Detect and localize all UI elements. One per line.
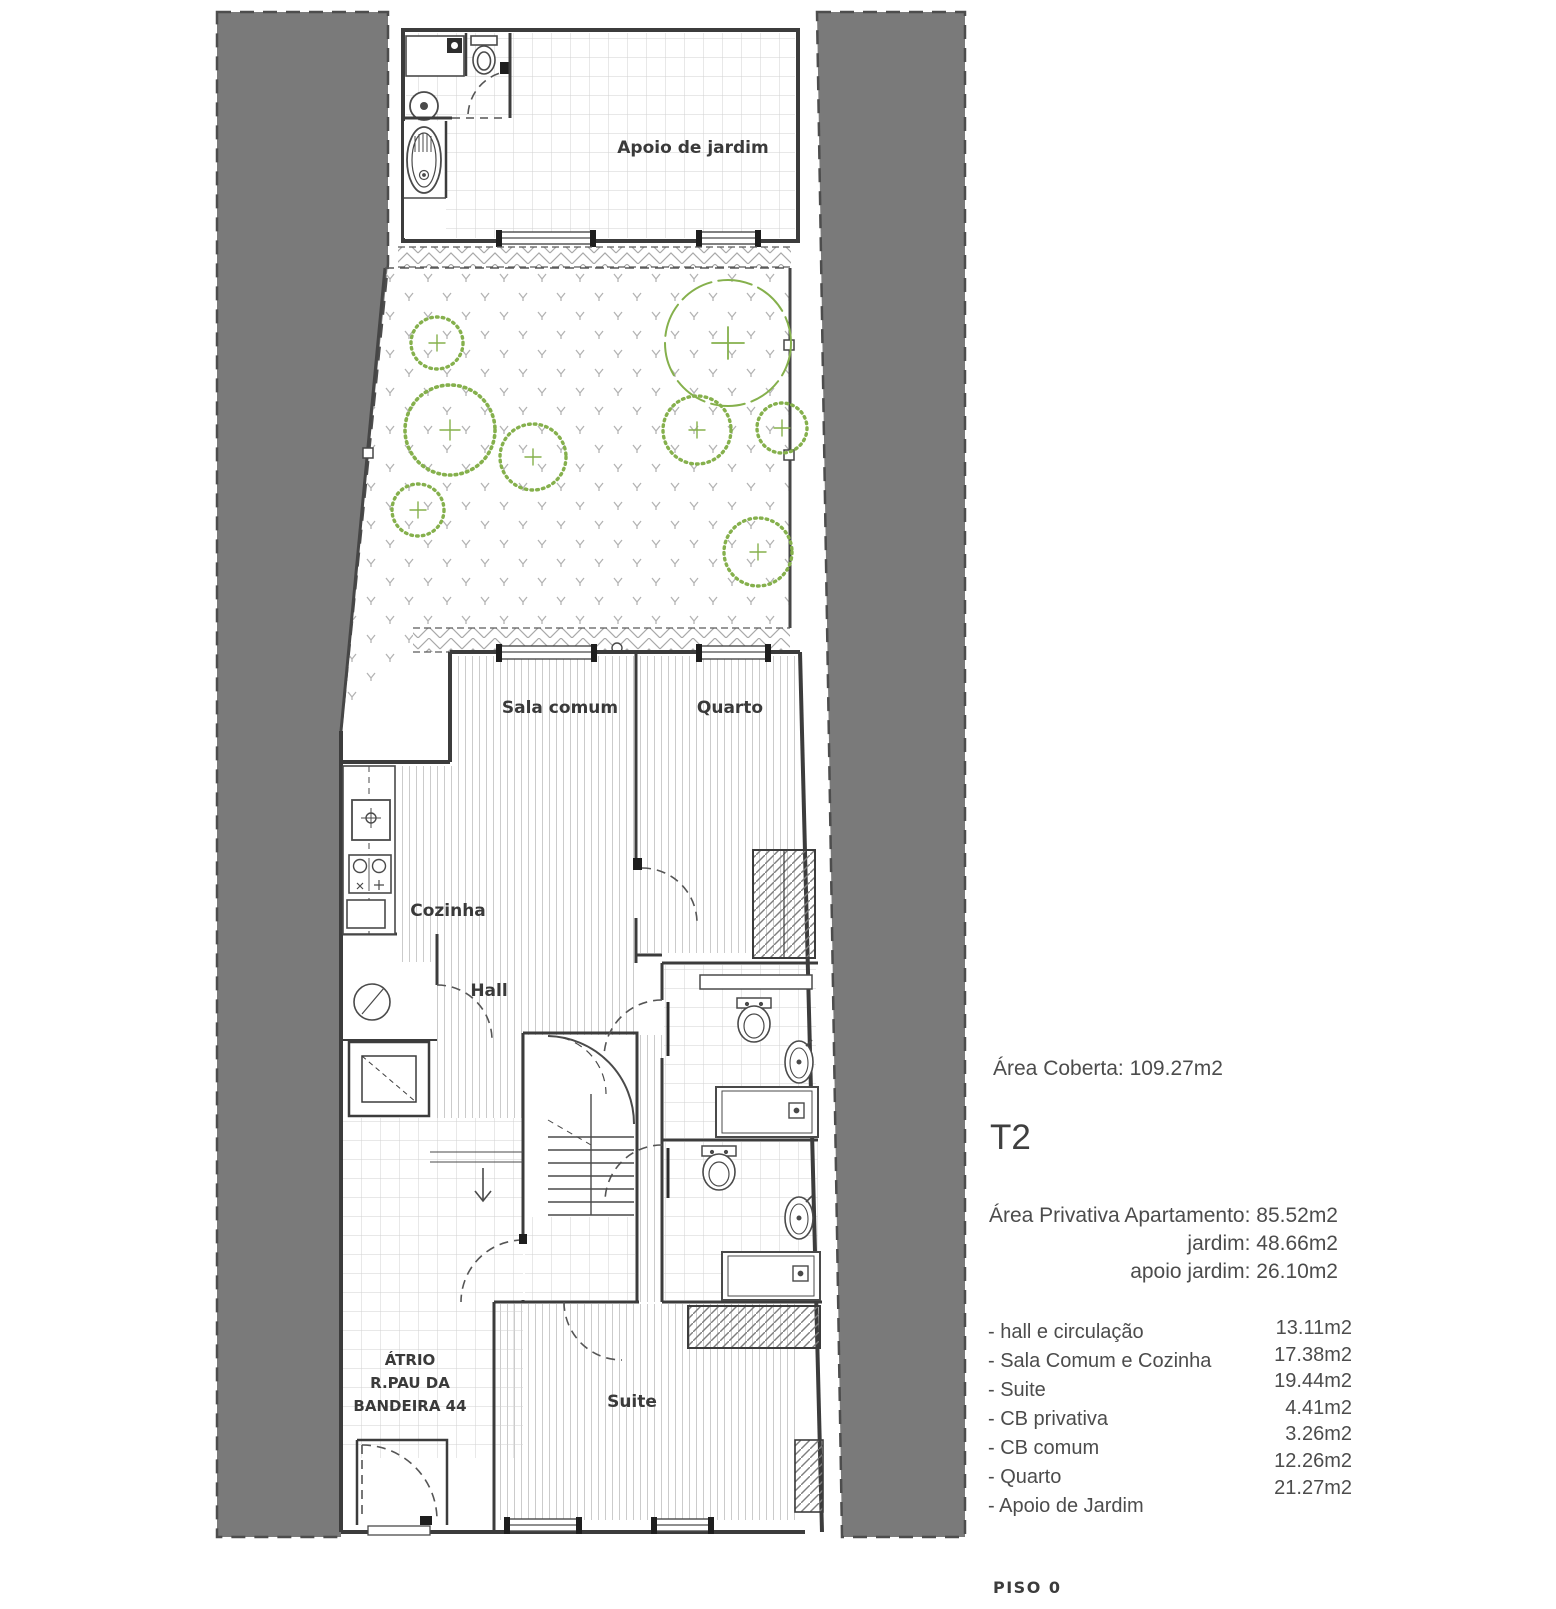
floor-plan-sheet: Apoio de jardim <box>0 0 1556 1609</box>
room-label-sala-comum: Sala comum <box>502 698 618 718</box>
room-label-atrio: BANDEIRA 44 <box>353 1397 466 1415</box>
wall-marker <box>784 340 794 350</box>
window <box>696 230 761 247</box>
room-label-cozinha: Cozinha <box>410 901 486 921</box>
room-label-atrio: ÁTRIO <box>385 1350 436 1369</box>
window <box>696 644 771 662</box>
room-area-value: 17.38m2 <box>1140 1342 1352 1369</box>
floor-level-label: PISO 0 <box>993 1578 1062 1597</box>
kitchen-floor <box>397 766 452 962</box>
window <box>496 644 597 662</box>
private-area-line: jardim: 48.66m2 <box>960 1230 1338 1258</box>
covered-area-text: Área Coberta: 109.27m2 <box>993 1057 1223 1081</box>
suite-closet <box>795 1440 823 1512</box>
bathtub-icon <box>722 1252 820 1300</box>
unit-type-label: T2 <box>990 1118 1031 1158</box>
technical-shaft <box>349 1042 429 1116</box>
room-label-apoio-jardim: Apoio de jardim <box>617 138 768 158</box>
hall-floor <box>437 1035 523 1118</box>
room-area-value: 21.27m2 <box>1140 1475 1352 1502</box>
washbasin-icon <box>785 1196 813 1239</box>
room-area-value: 3.26m2 <box>1140 1421 1352 1448</box>
wc-toilet-icon <box>471 36 497 74</box>
shelf <box>700 975 812 989</box>
door-jamb <box>500 62 509 74</box>
garden-support-building: Apoio de jardim <box>403 30 798 247</box>
wall-marker <box>363 448 373 458</box>
room-area-value: 19.44m2 <box>1140 1368 1352 1395</box>
room-area-value: 4.41m2 <box>1140 1395 1352 1422</box>
hall-floor <box>437 962 635 1035</box>
room-areas-values: 13.11m2 17.38m2 19.44m2 4.41m2 3.26m2 12… <box>1140 1315 1352 1501</box>
window <box>504 1517 582 1534</box>
kitchen-sink-icon <box>352 800 390 840</box>
bathtub-icon <box>716 1087 818 1137</box>
window <box>496 230 596 247</box>
room-area-value: 12.26m2 <box>1140 1448 1352 1475</box>
window <box>651 1517 714 1534</box>
right-neighbour-mass <box>817 12 965 1537</box>
paving-strip-top <box>398 247 791 267</box>
laundry-room <box>354 984 390 1020</box>
corridor-floor <box>639 1035 662 1302</box>
private-area-line: apoio jardim: 26.10m2 <box>960 1258 1338 1286</box>
room-label-atrio: R.PAU DA <box>370 1374 450 1392</box>
kitchen-cabinet <box>347 900 385 928</box>
private-areas-block: Área Privativa Apartamento: 85.52m2 jard… <box>960 1202 1338 1286</box>
washbasin-icon <box>785 1040 813 1083</box>
stove-icon <box>349 855 391 893</box>
suite-closet <box>688 1306 820 1348</box>
room-label-hall: Hall <box>470 981 507 1001</box>
wc-toilet-icon <box>702 1146 736 1190</box>
room-label-suite: Suite <box>607 1392 657 1412</box>
room-area-value: 13.11m2 <box>1140 1315 1352 1342</box>
room-label-quarto: Quarto <box>697 698 763 718</box>
kitchen <box>343 766 395 934</box>
wc-toilet-icon <box>737 998 771 1042</box>
private-area-line: Área Privativa Apartamento: 85.52m2 <box>960 1202 1338 1230</box>
